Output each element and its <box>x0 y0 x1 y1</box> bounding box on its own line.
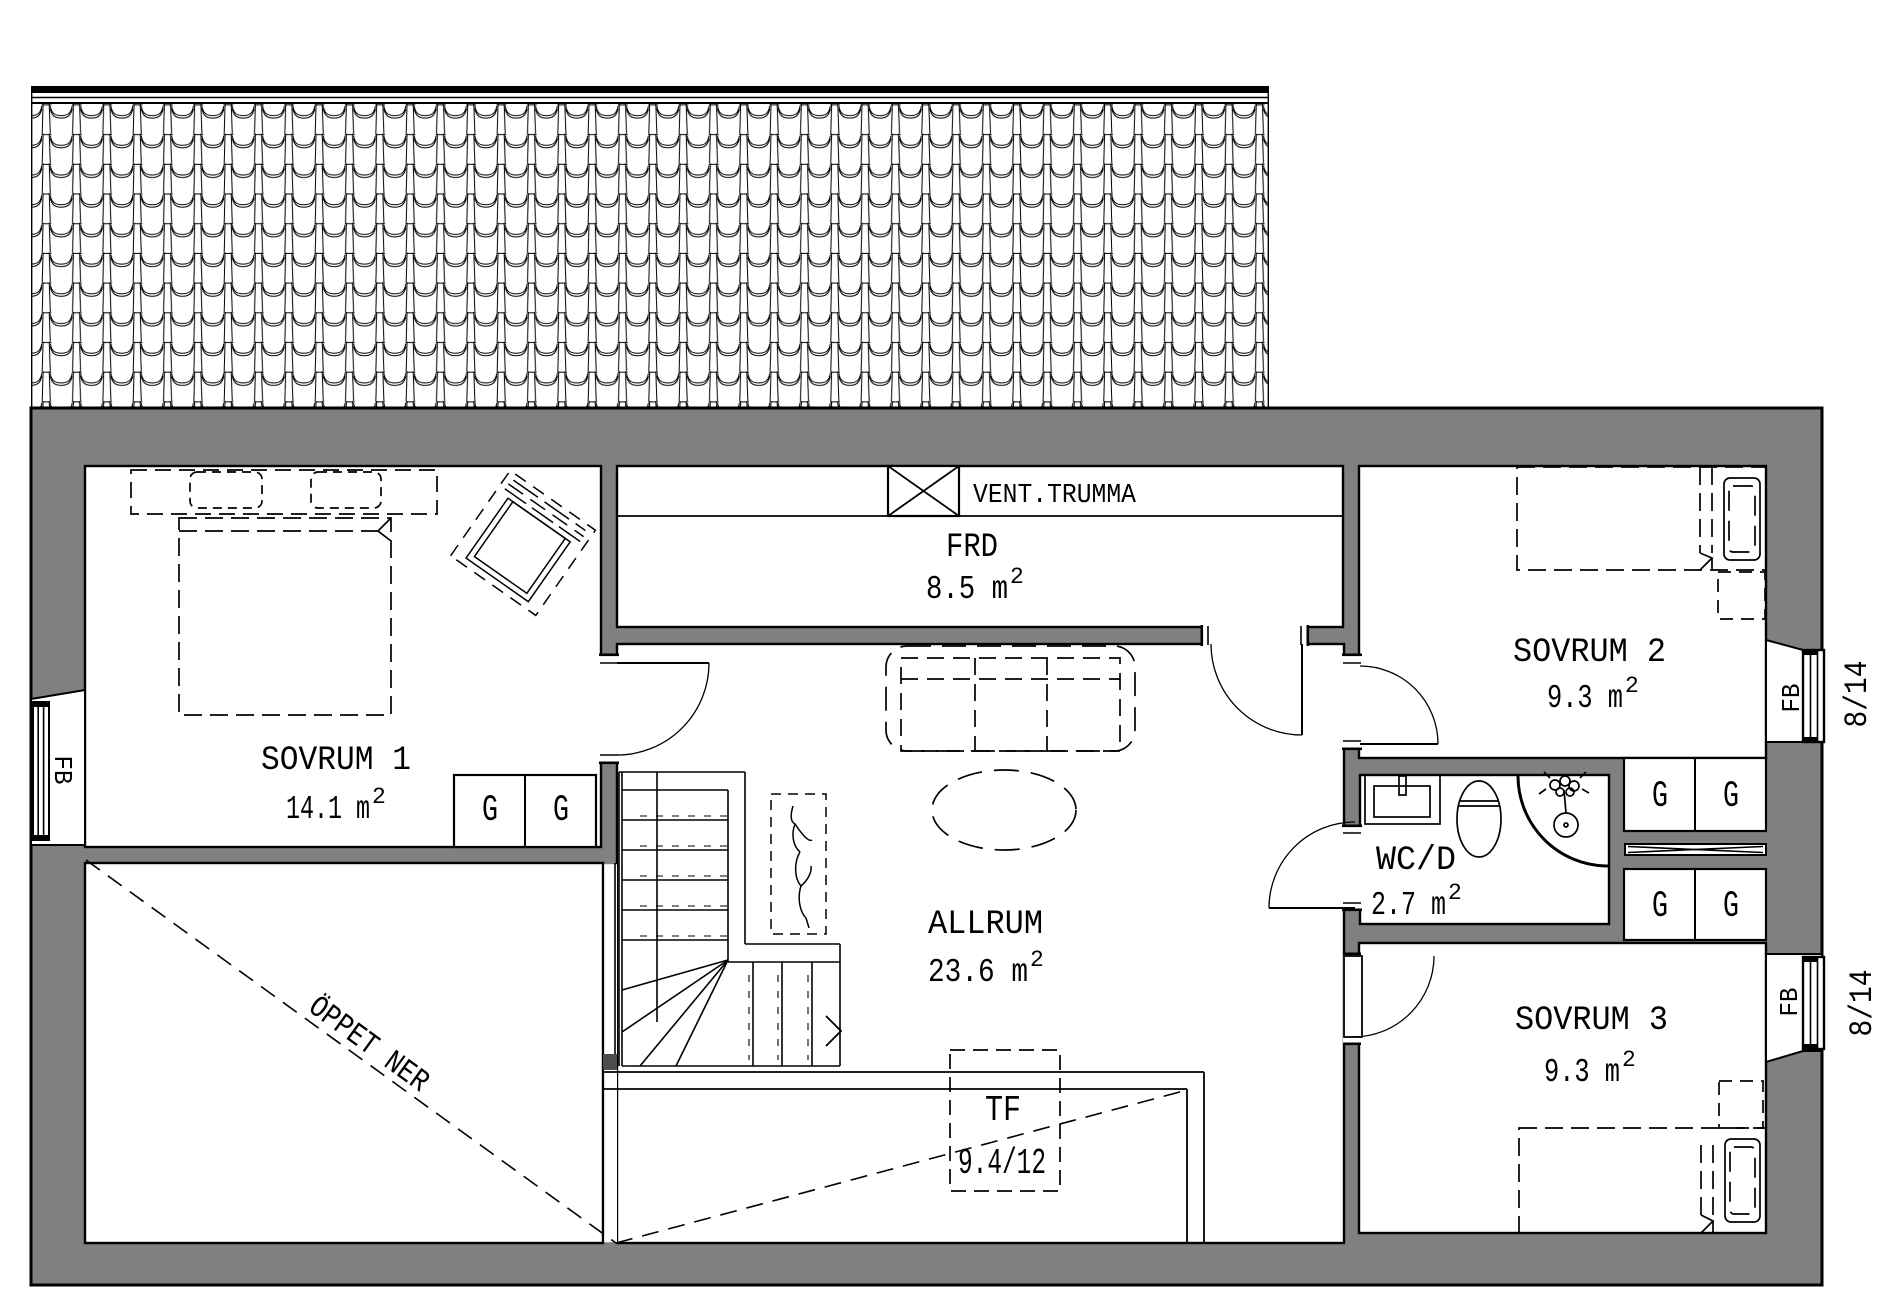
svg-text:G: G <box>482 790 498 832</box>
svg-text:9.3 m: 9.3 m <box>1547 680 1623 717</box>
svg-text:2: 2 <box>372 784 386 810</box>
svg-text:FRD: FRD <box>946 529 998 567</box>
svg-text:2: 2 <box>1625 673 1639 699</box>
svg-text:8.5 m: 8.5 m <box>926 571 1008 608</box>
svg-text:9.3 m: 9.3 m <box>1544 1054 1620 1091</box>
svg-text:G: G <box>1723 776 1739 818</box>
svg-text:2: 2 <box>1010 564 1024 590</box>
svg-text:8/14: 8/14 <box>1844 970 1878 1037</box>
svg-text:2.7 m: 2.7 m <box>1371 887 1446 924</box>
svg-text:8/14: 8/14 <box>1839 661 1876 728</box>
svg-text:9.4/12: 9.4/12 <box>958 1143 1046 1184</box>
svg-text:14.1 m: 14.1 m <box>286 791 370 828</box>
svg-text:ALLRUM: ALLRUM <box>928 906 1043 944</box>
svg-text:SOVRUM 3: SOVRUM 3 <box>1515 1002 1668 1040</box>
svg-text:2: 2 <box>1448 880 1462 906</box>
svg-text:SOVRUM 1: SOVRUM 1 <box>261 742 411 780</box>
svg-text:G: G <box>1723 886 1739 928</box>
svg-text:G: G <box>553 790 569 832</box>
svg-text:FB: FB <box>47 756 77 785</box>
svg-text:FB: FB <box>1777 684 1807 713</box>
svg-text:VENT.TRUMMA: VENT.TRUMMA <box>973 481 1137 511</box>
svg-text:2: 2 <box>1030 947 1044 973</box>
svg-text:SOVRUM 2: SOVRUM 2 <box>1513 634 1666 672</box>
svg-text:TF: TF <box>985 1090 1021 1131</box>
svg-text:23.6 m: 23.6 m <box>928 954 1028 991</box>
svg-text:FB: FB <box>1775 988 1805 1017</box>
svg-text:G: G <box>1652 776 1668 818</box>
svg-text:WC/D: WC/D <box>1376 842 1456 880</box>
svg-text:2: 2 <box>1622 1047 1636 1073</box>
svg-text:G: G <box>1652 886 1668 928</box>
